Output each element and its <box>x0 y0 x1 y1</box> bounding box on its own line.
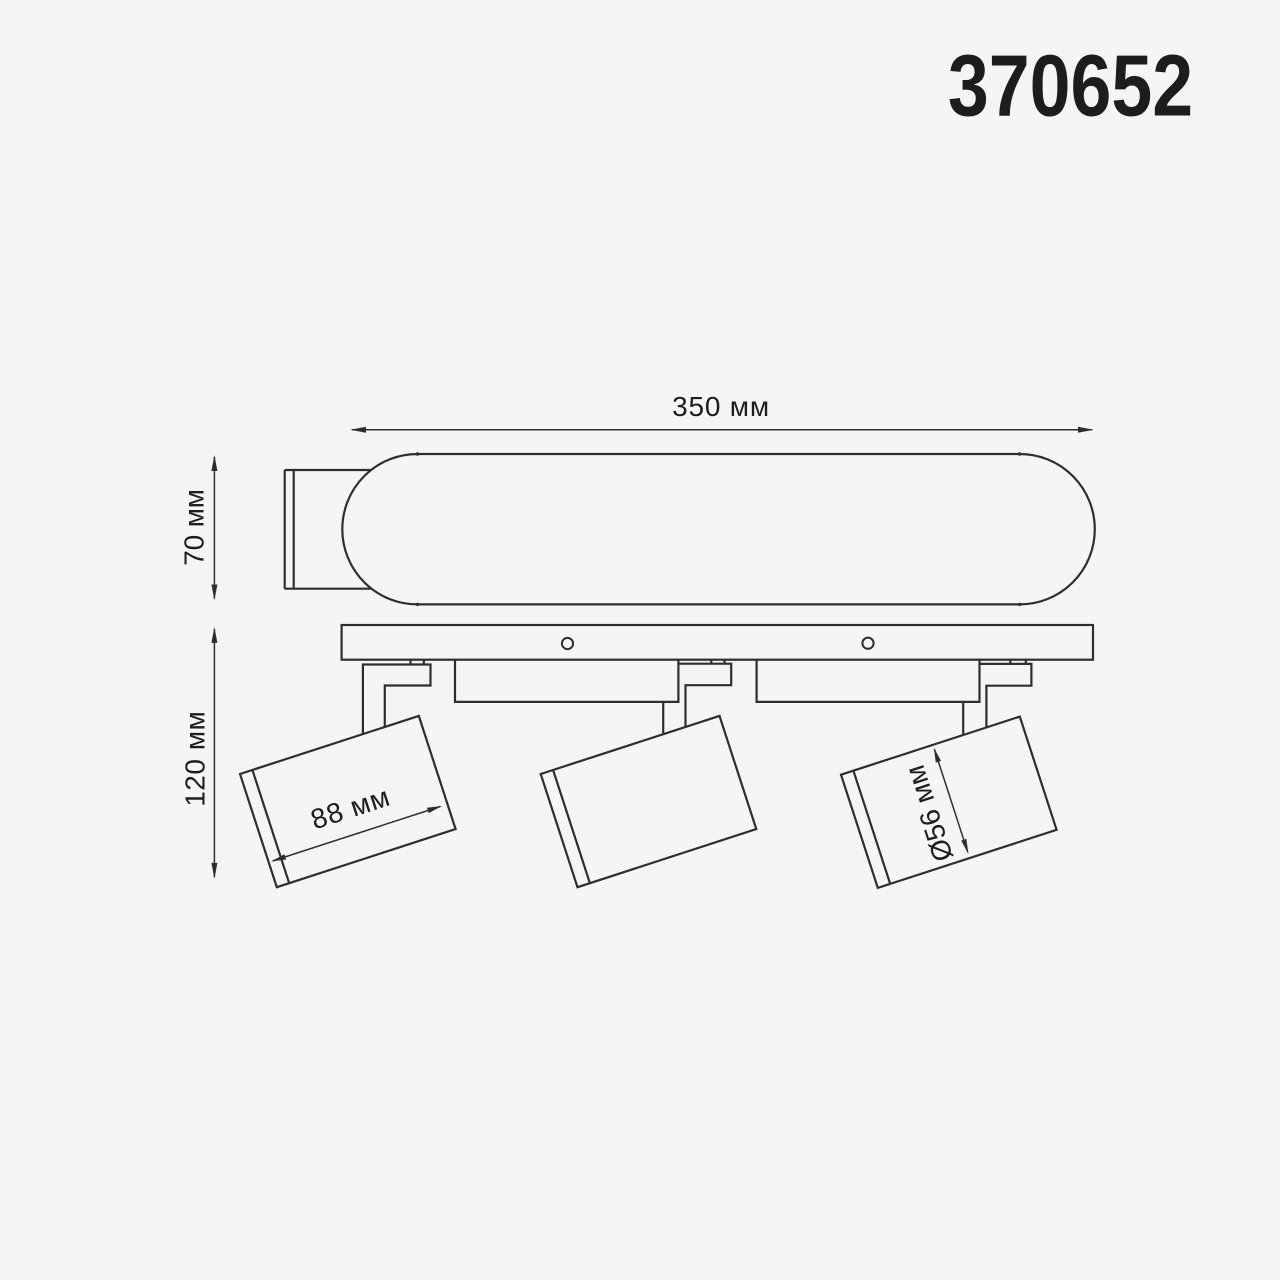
svg-text:120 мм: 120 мм <box>180 711 211 807</box>
svg-text:70 мм: 70 мм <box>178 489 209 565</box>
svg-text:370652: 370652 <box>948 38 1193 135</box>
svg-text:350 мм: 350 мм <box>672 391 770 422</box>
